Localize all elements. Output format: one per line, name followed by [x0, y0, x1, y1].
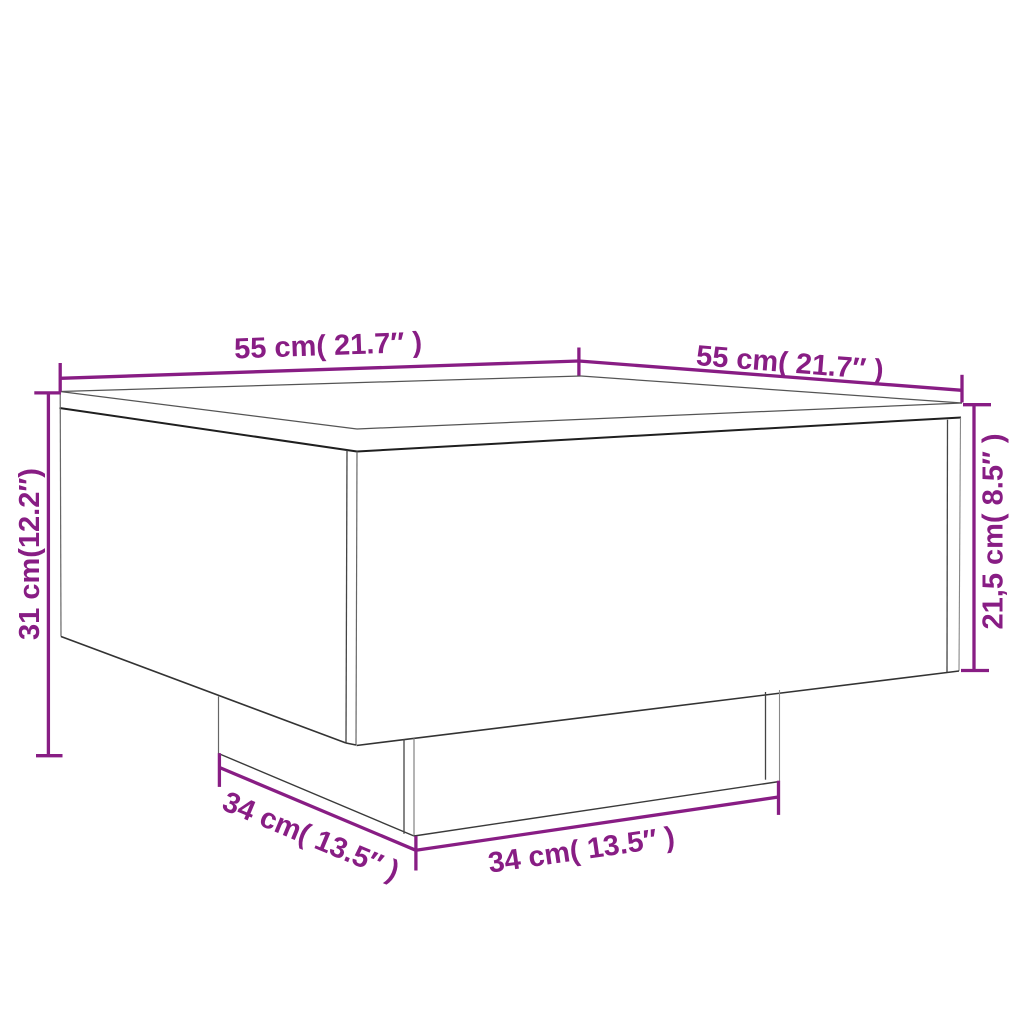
svg-text:21,5 cm( 8.5″ ): 21,5 cm( 8.5″ ) — [978, 433, 1010, 629]
svg-text:31 cm(12.2″): 31 cm(12.2″) — [14, 468, 46, 640]
